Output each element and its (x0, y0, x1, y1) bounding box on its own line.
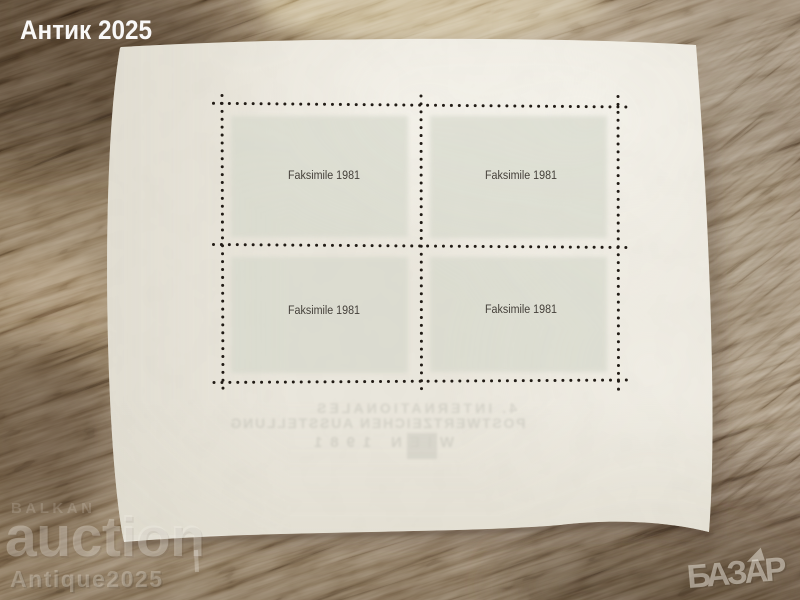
svg-text:Faksimile 1981: Faksimile 1981 (288, 168, 360, 182)
svg-text:POSTWERTZEICHEN AUSSTELLUNG: POSTWERTZEICHEN AUSSTELLUNG (230, 415, 525, 431)
svg-text:Faksimile 1981: Faksimile 1981 (485, 302, 557, 316)
svg-text:Faksimile 1981: Faksimile 1981 (288, 303, 360, 317)
svg-text:auction: auction (5, 505, 205, 569)
svg-text:Faksimile 1981: Faksimile 1981 (485, 168, 557, 182)
svg-text:Antique2025: Antique2025 (10, 566, 162, 592)
svg-text:Антик 2025: Антик 2025 (20, 15, 152, 45)
